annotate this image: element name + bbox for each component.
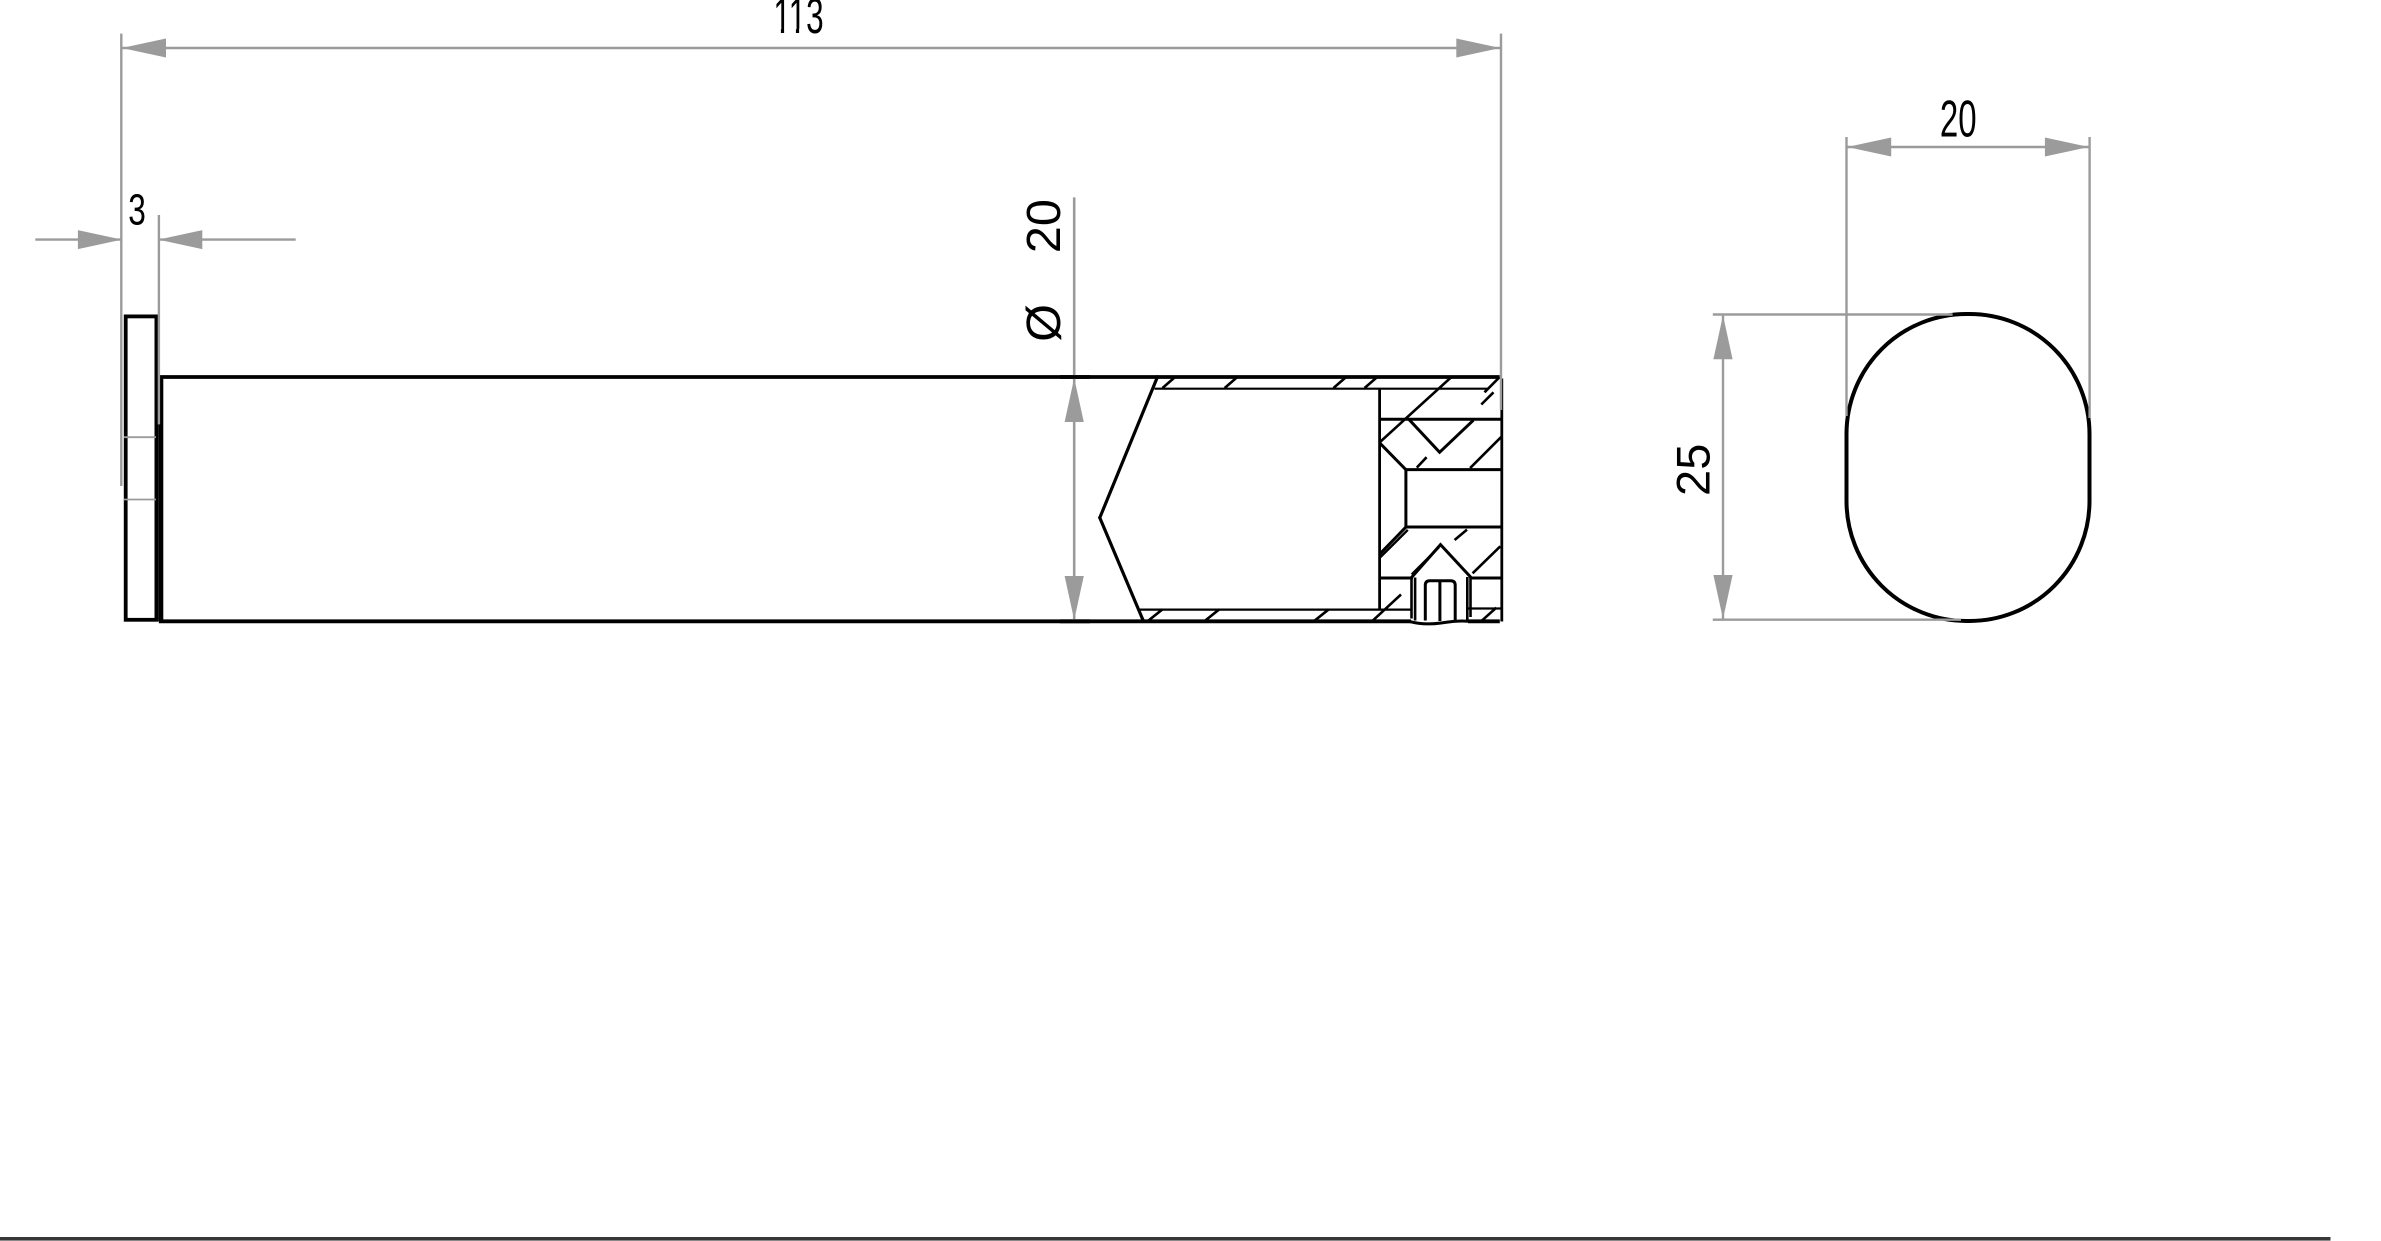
svg-text:3: 3 xyxy=(128,185,146,234)
svg-text:25: 25 xyxy=(1667,444,1720,496)
svg-text:20: 20 xyxy=(1017,199,1071,253)
svg-text:20: 20 xyxy=(1940,91,1977,148)
svg-text:Ø: Ø xyxy=(1017,304,1071,342)
svg-text:113: 113 xyxy=(773,0,823,44)
